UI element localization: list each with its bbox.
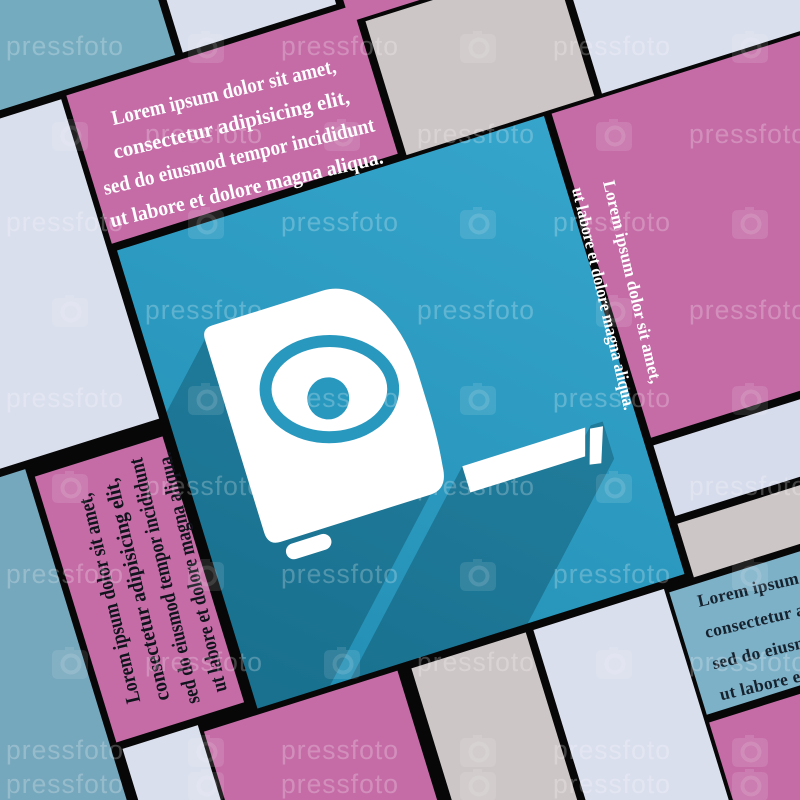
svg-text:pressfoto: pressfoto <box>281 769 399 799</box>
svg-text:pressfoto: pressfoto <box>689 647 800 677</box>
svg-text:pressfoto: pressfoto <box>6 383 124 413</box>
svg-text:pressfoto: pressfoto <box>6 559 124 589</box>
svg-text:pressfoto: pressfoto <box>553 383 671 413</box>
svg-text:pressfoto: pressfoto <box>6 31 124 61</box>
svg-text:pressfoto: pressfoto <box>417 647 535 677</box>
svg-text:pressfoto: pressfoto <box>145 295 263 325</box>
svg-text:pressfoto: pressfoto <box>281 735 399 765</box>
svg-text:pressfoto: pressfoto <box>281 383 399 413</box>
svg-text:pressfoto: pressfoto <box>553 769 671 799</box>
svg-text:pressfoto: pressfoto <box>553 735 671 765</box>
svg-text:pressfoto: pressfoto <box>417 471 535 501</box>
svg-text:pressfoto: pressfoto <box>553 31 671 61</box>
svg-text:pressfoto: pressfoto <box>6 207 124 237</box>
svg-text:pressfoto: pressfoto <box>6 735 124 765</box>
svg-text:pressfoto: pressfoto <box>417 295 535 325</box>
svg-text:pressfoto: pressfoto <box>689 295 800 325</box>
svg-text:pressfoto: pressfoto <box>145 647 263 677</box>
svg-text:pressfoto: pressfoto <box>281 31 399 61</box>
svg-text:pressfoto: pressfoto <box>281 207 399 237</box>
svg-text:pressfoto: pressfoto <box>553 559 671 589</box>
svg-text:pressfoto: pressfoto <box>145 119 263 149</box>
svg-text:pressfoto: pressfoto <box>145 471 263 501</box>
svg-text:pressfoto: pressfoto <box>6 769 124 799</box>
svg-text:pressfoto: pressfoto <box>553 207 671 237</box>
svg-text:pressfoto: pressfoto <box>689 471 800 501</box>
svg-text:pressfoto: pressfoto <box>689 119 800 149</box>
svg-text:pressfoto: pressfoto <box>281 559 399 589</box>
svg-text:pressfoto: pressfoto <box>417 119 535 149</box>
